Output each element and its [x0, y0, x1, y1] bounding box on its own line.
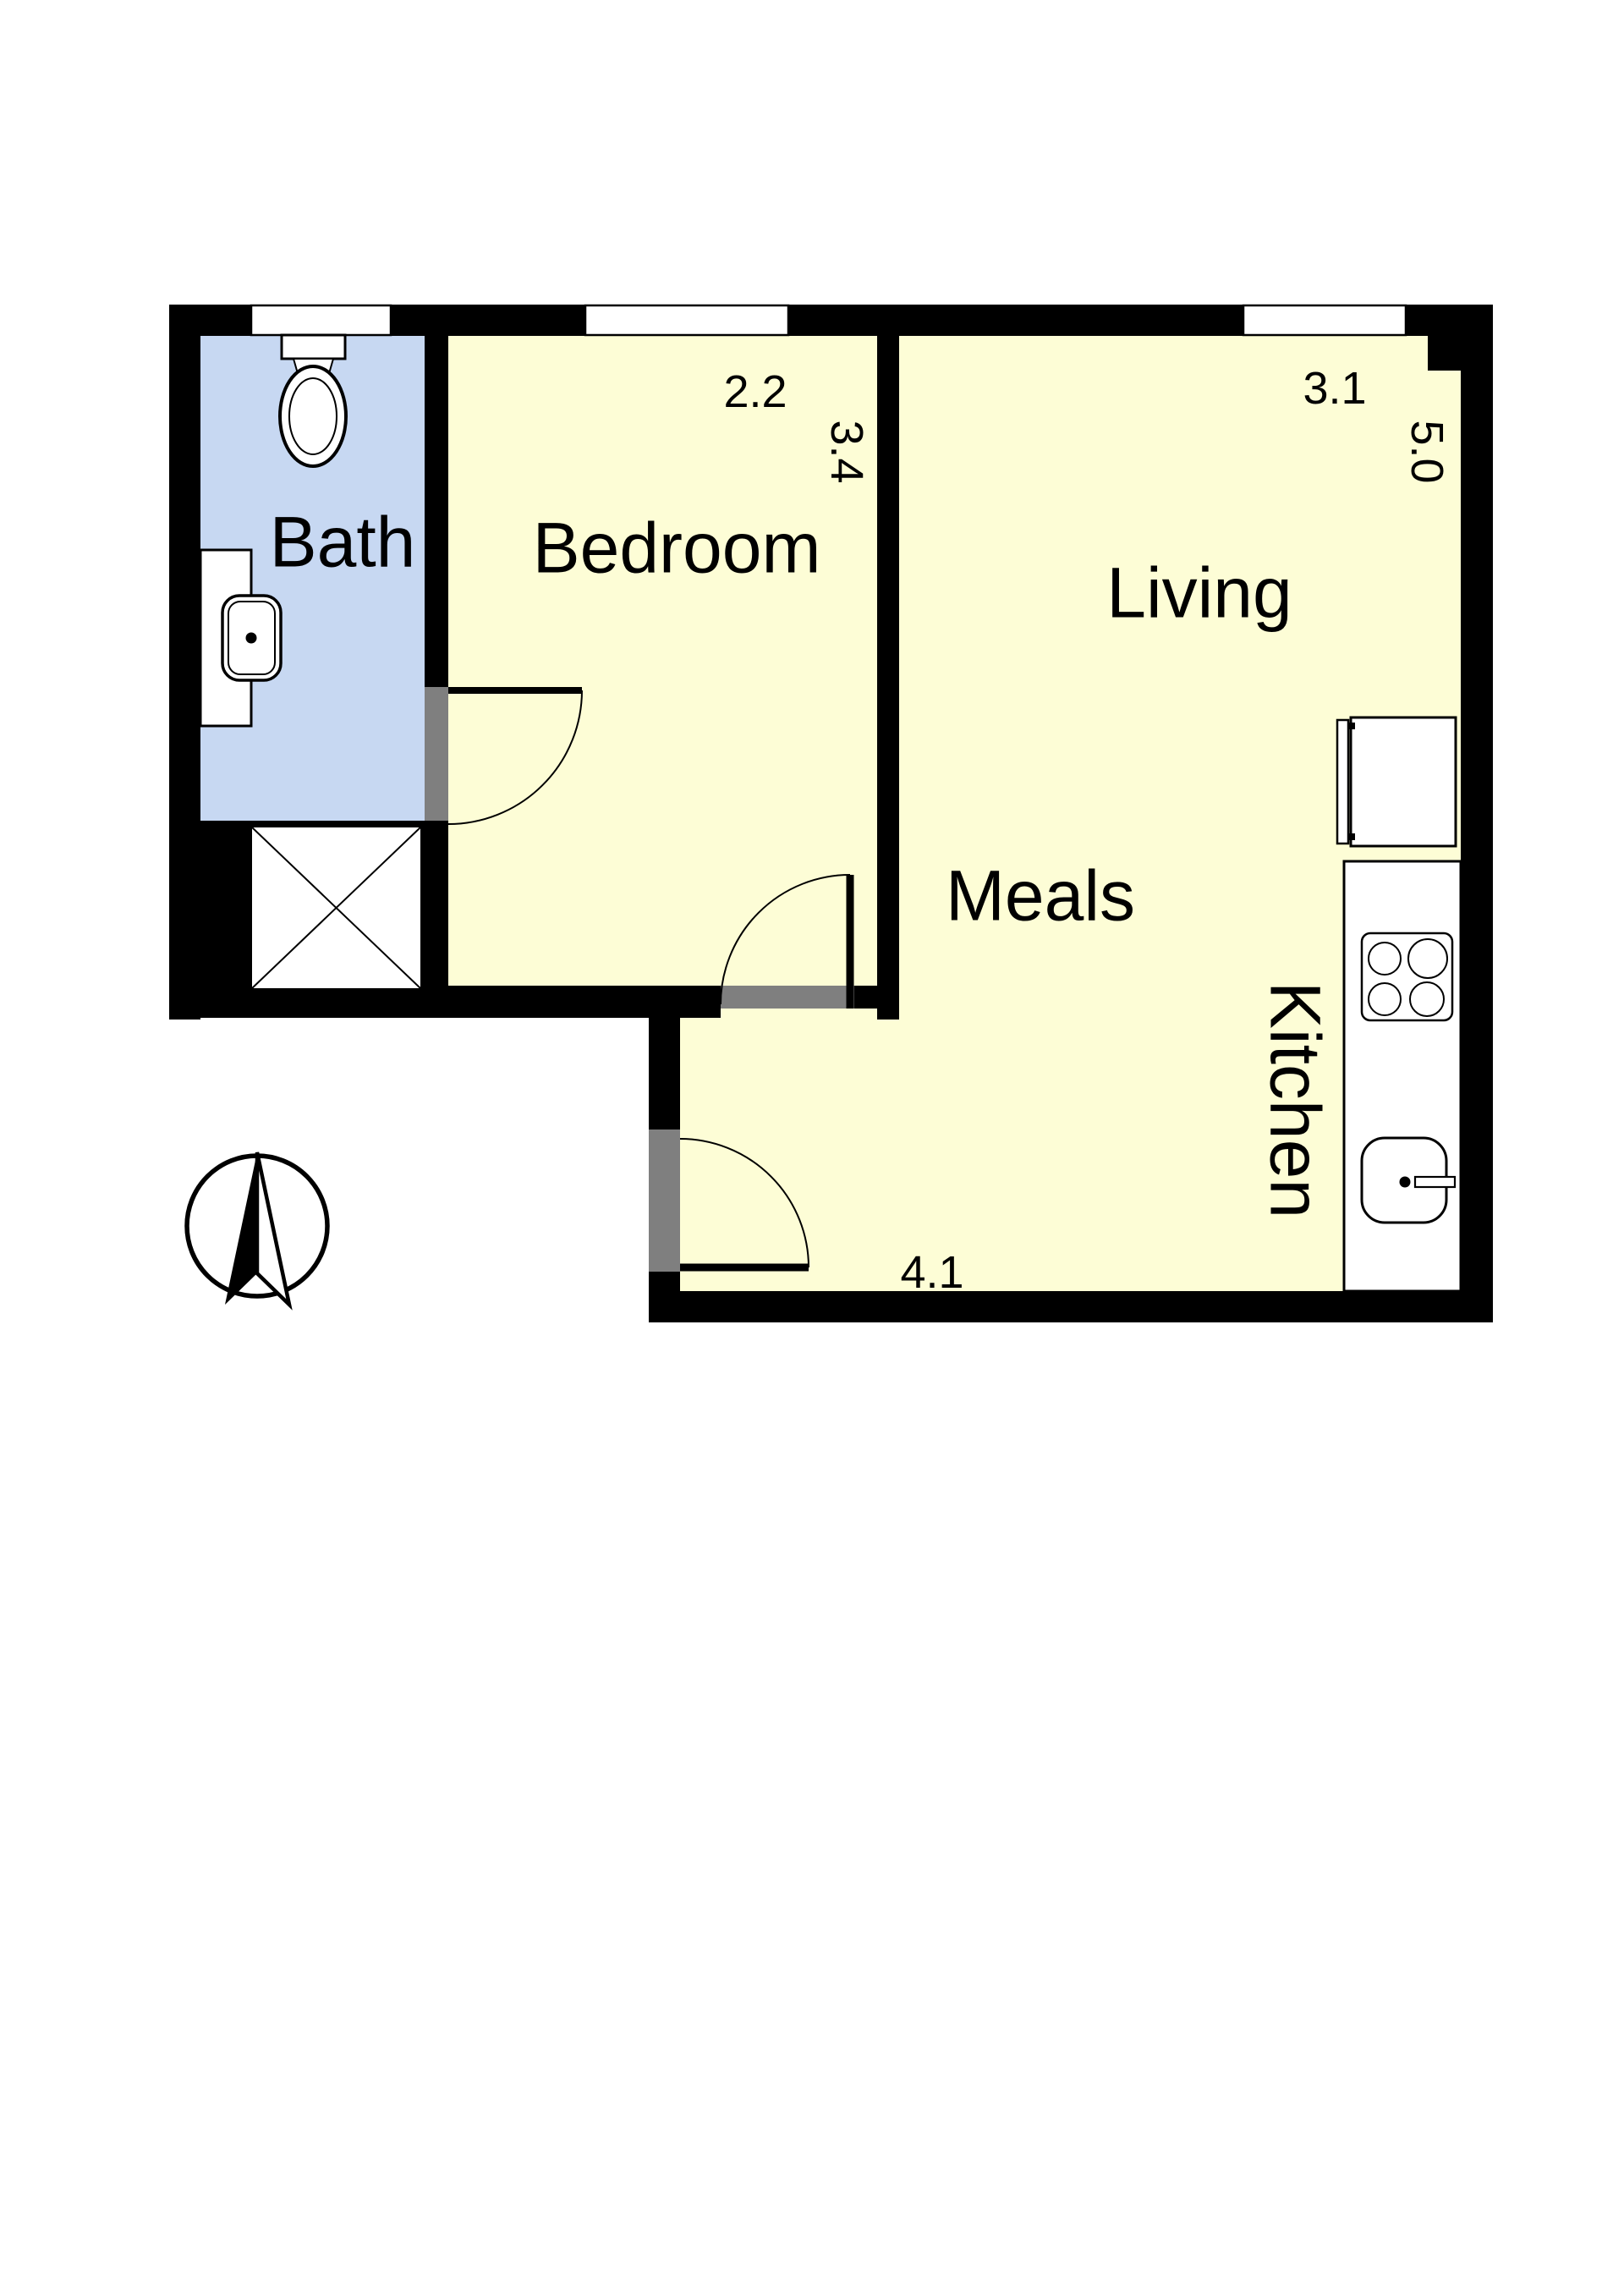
floor-plan-page: Bath Bedroom Living Meals Kitchen 2.2 3.…: [0, 0, 1624, 2281]
sink-faucet-icon: [1415, 1177, 1455, 1187]
wall-corner-notch: [1428, 336, 1462, 371]
compass: [187, 1152, 327, 1305]
fridge-hinge-top-icon: [1348, 723, 1355, 729]
living-width-dim: 3.1: [1303, 363, 1366, 414]
service-shaft: [251, 827, 421, 989]
fridge-icon: [1351, 717, 1456, 846]
bedroom-window: [585, 305, 788, 335]
bedroom-area: [448, 336, 877, 986]
living-label: Living: [1106, 552, 1292, 632]
wall-bottom: [649, 1291, 1493, 1322]
entry-door-opening: [649, 1130, 680, 1272]
bath-window: [251, 305, 391, 335]
meals-area: [680, 1009, 899, 1291]
floor-plan: Bath Bedroom Living Meals Kitchen 2.2 3.…: [0, 0, 1624, 2281]
bath-door-opening: [425, 687, 448, 821]
kitchen-label: Kitchen: [1256, 981, 1336, 1218]
sink-drain-icon: [1400, 1177, 1411, 1188]
wall-entry-upper: [649, 986, 680, 1130]
fridge-door-panel-icon: [1337, 720, 1348, 844]
bedroom-label: Bedroom: [533, 508, 821, 587]
living-depth-dim: 5.0: [1402, 420, 1452, 483]
bedroom-door-opening: [721, 986, 854, 1009]
wall-bedroom-living: [877, 336, 899, 1020]
bath-label: Bath: [270, 502, 416, 581]
bedroom-width-dim: 2.2: [723, 366, 787, 417]
kitchen-fixtures: [1337, 717, 1461, 1291]
wall-bedroom-bottom-east: [854, 986, 877, 1009]
meals-width-dim: 4.1: [900, 1247, 963, 1298]
meals-label: Meals: [946, 855, 1135, 935]
kitchen-counter: [1344, 861, 1461, 1291]
wall-right: [1461, 305, 1493, 1322]
fridge-hinge-bottom-icon: [1348, 833, 1355, 840]
bath-basin-drain-icon: [246, 633, 257, 644]
toilet-bowl-inner-icon: [289, 378, 337, 454]
bedroom-depth-dim: 3.4: [821, 420, 872, 483]
living-window: [1243, 305, 1406, 335]
toilet-cistern-icon: [282, 335, 345, 359]
